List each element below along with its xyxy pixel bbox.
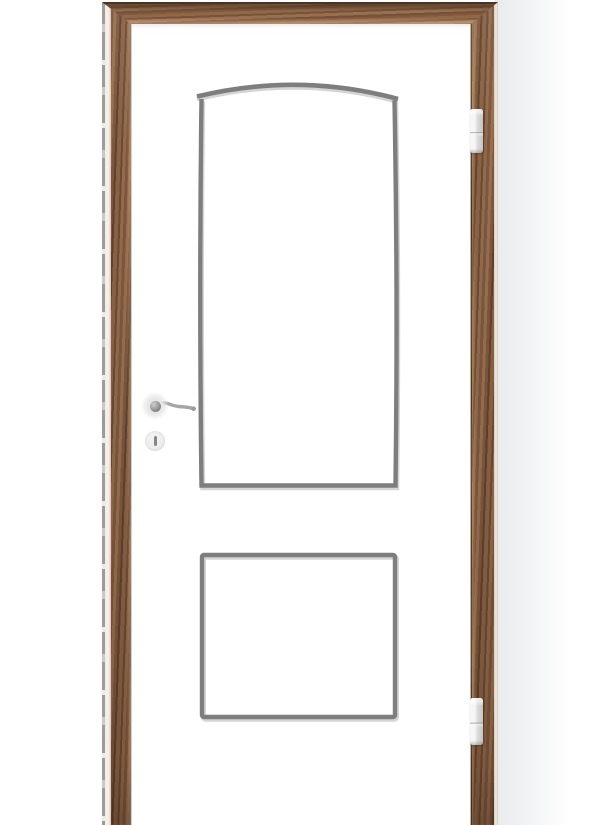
keyhole-escutcheon: [145, 431, 165, 451]
door-product-photo: [0, 0, 600, 825]
hinge-top: [470, 109, 483, 153]
door-leaf: [131, 22, 471, 825]
frame-header: [102, 2, 498, 24]
keyhole-slot-icon: [154, 436, 157, 446]
background-shadow-gradient: [494, 0, 590, 825]
handle-rosette-knob: [150, 401, 161, 412]
hinge-bottom: [470, 698, 483, 745]
frame-leg-left-wood: [111, 2, 132, 825]
frame-leg-left: [102, 2, 131, 825]
frame-edge-strip-right: [494, 2, 498, 825]
